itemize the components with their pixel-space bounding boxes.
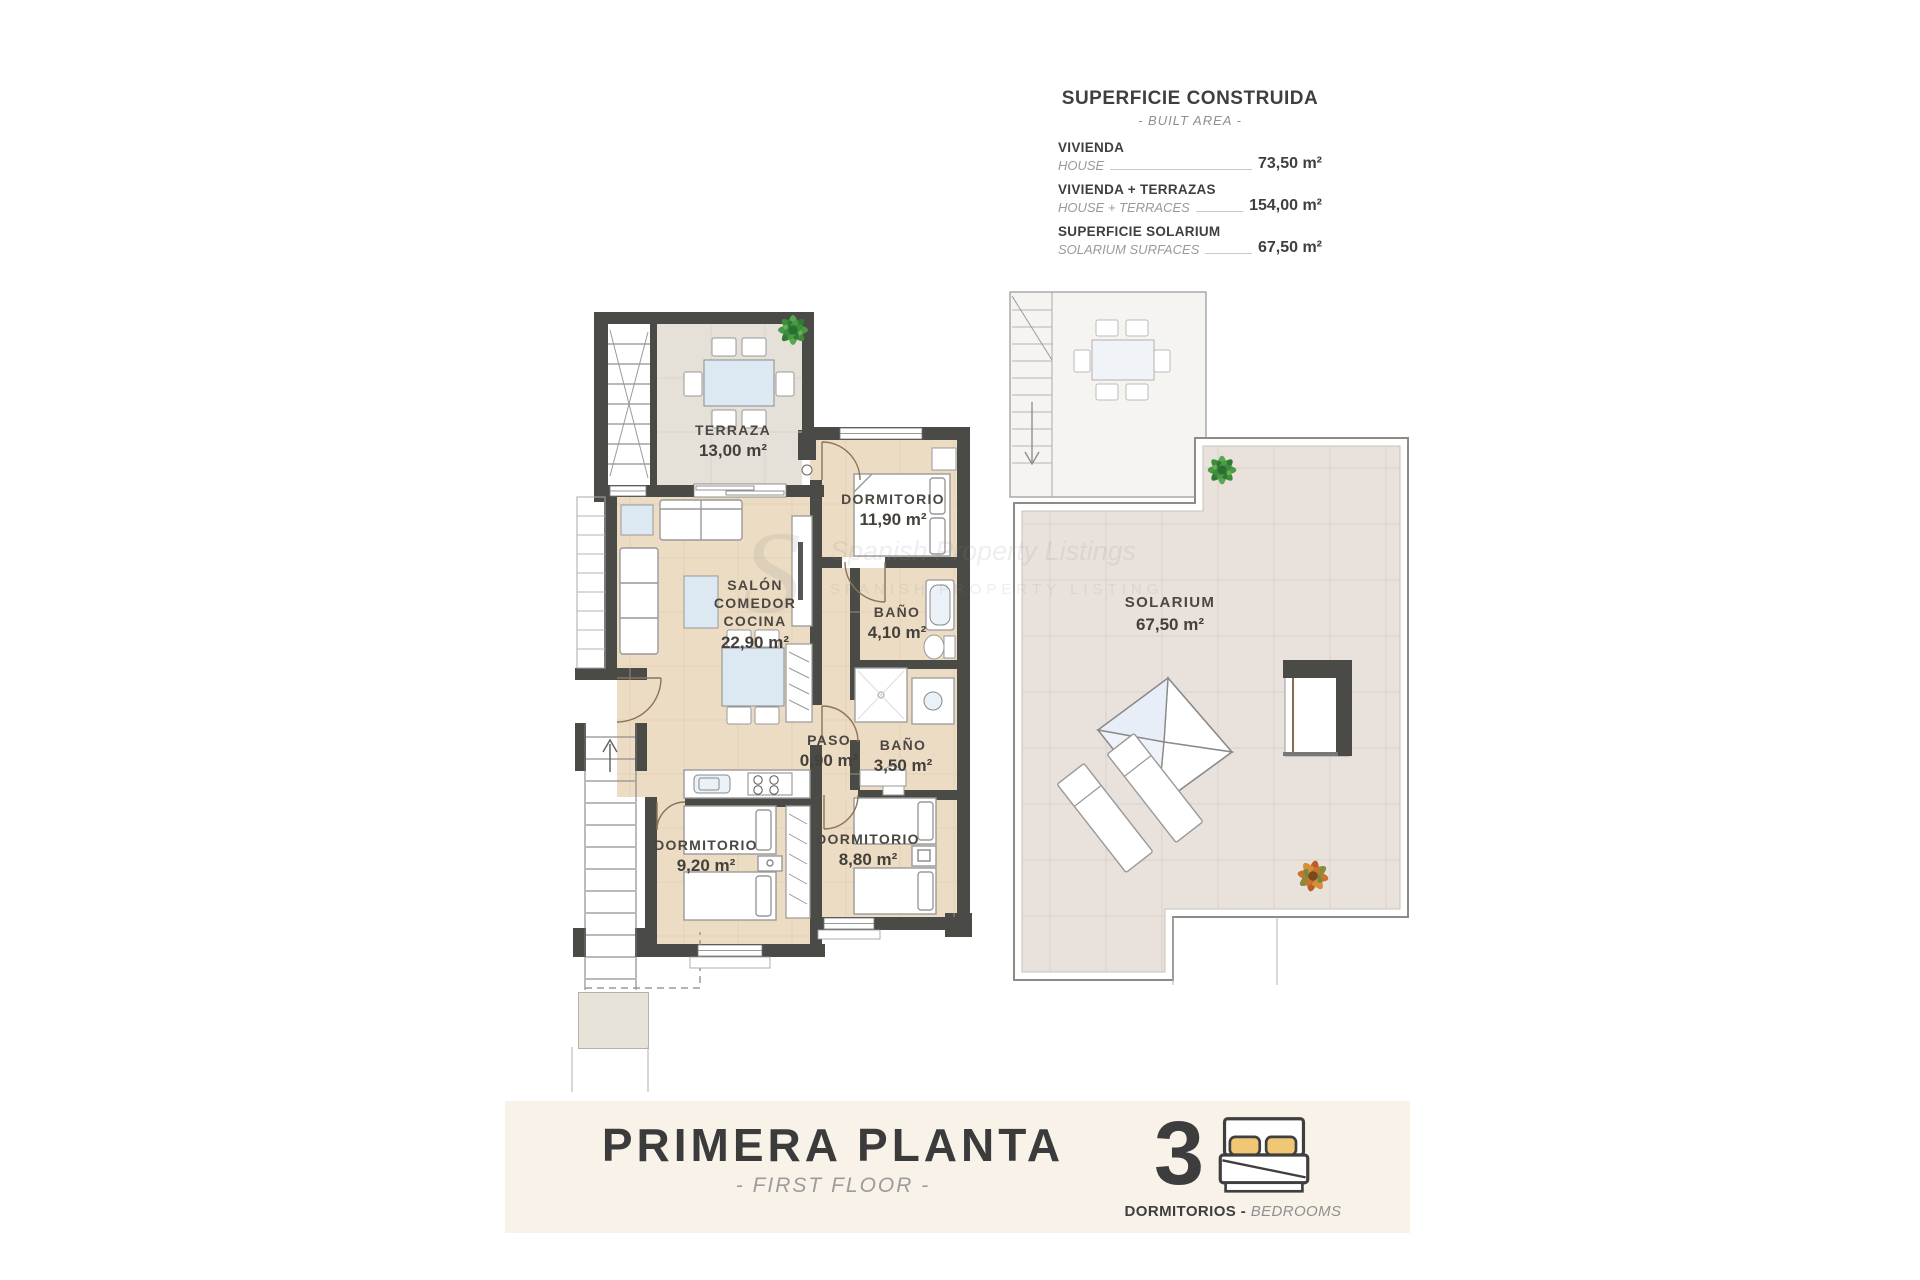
room-name: TERRAZA: [653, 421, 813, 439]
built-area-subtitle: - BUILT AREA -: [1058, 113, 1322, 128]
room-area: 4,10 m²: [849, 623, 945, 643]
wall-segment: [810, 805, 822, 944]
solarium-deck: [1014, 438, 1408, 985]
built-area-row: VIVIENDA HOUSE 73,50 m²: [1058, 140, 1322, 173]
footer-banner: PRIMERA PLANTA - FIRST FLOOR - 3 DORMITO…: [505, 1101, 1410, 1233]
row-value: 73,50 m²: [1258, 155, 1322, 173]
stairs-mid: [577, 497, 605, 668]
stairs-top: [608, 330, 650, 478]
room-name: DORMITORIO: [800, 830, 936, 848]
wall-segment: [885, 557, 957, 568]
built-area-row: SUPERFICIE SOLARIUM SOLARIUM SURFACES 67…: [1058, 224, 1322, 257]
wall-segment: [635, 928, 647, 957]
room-name: BAÑO: [849, 603, 945, 621]
dormitorio2-door-floor: [655, 797, 685, 807]
room-label-dormitorio-2: DORMITORIO 9,20 m²: [646, 836, 766, 876]
wall-segment: [858, 790, 957, 800]
room-area: 3,50 m²: [855, 756, 951, 776]
built-area-title: SUPERFICIE CONSTRUIDA: [1058, 88, 1322, 110]
plant-icon: [1297, 860, 1330, 893]
bedrooms-label-es: DORMITORIOS: [1125, 1203, 1237, 1220]
wall-segment: [573, 928, 586, 957]
stair-landing-below: [578, 992, 649, 1049]
room-name: SOLARIUM: [1088, 593, 1252, 613]
floor-title-block: PRIMERA PLANTA - FIRST FLOOR -: [533, 1121, 1133, 1198]
dotted-leader: [1110, 169, 1252, 170]
row-label: SUPERFICIE SOLARIUM: [1058, 224, 1322, 239]
floor-title: PRIMERA PLANTA: [533, 1121, 1133, 1169]
wall-segment: [810, 660, 822, 705]
row-sublabel: HOUSE + TERRACES: [1058, 200, 1190, 215]
terraza-floor: [657, 324, 802, 487]
wall-segment: [945, 913, 972, 937]
room-name: DORMITORIO: [646, 836, 766, 854]
wall-segment: [802, 427, 970, 440]
room-name: DORMITORIO: [820, 490, 966, 508]
sunbed: [1107, 733, 1203, 842]
room-area: 11,90 m²: [820, 510, 966, 530]
room-label-dormitorio-3: DORMITORIO 8,80 m²: [800, 830, 936, 870]
wall-segment: [822, 557, 842, 568]
bedrooms-label: DORMITORIOS - BEDROOMS: [1108, 1203, 1358, 1220]
stair-extension-lines: [572, 1047, 648, 1092]
built-area-panel: SUPERFICIE CONSTRUIDA - BUILT AREA - VIV…: [1058, 88, 1322, 257]
wall-segment: [650, 324, 657, 487]
row-value: 154,00 m²: [1249, 197, 1322, 215]
upper-terrace-outline: [1010, 292, 1206, 497]
bedrooms-block: 3 DORMITORIOS - BEDROOMS: [1108, 1109, 1358, 1220]
room-label-dormitorio-1: DORMITORIO 11,90 m²: [820, 490, 966, 530]
wall-segment: [594, 312, 814, 324]
bedrooms-label-en: BEDROOMS: [1251, 1203, 1342, 1220]
bedrooms-separator: -: [1236, 1203, 1251, 1220]
wall-segment: [575, 723, 586, 771]
plant-icon: [1208, 456, 1237, 485]
wall-segment: [645, 944, 825, 957]
pyramid-skylight: [1098, 678, 1232, 806]
room-name: BAÑO: [855, 736, 951, 754]
floor-plan-page: S Spanish Property Listings SPANISH PROP…: [0, 0, 1920, 1280]
wall-segment: [685, 797, 812, 807]
row-sublabel: SOLARIUM SURFACES: [1058, 242, 1199, 257]
room-area: 13,00 m²: [653, 441, 813, 461]
wall-segment: [575, 668, 647, 680]
room-area: 9,20 m²: [646, 856, 766, 876]
room-name: SALÓN: [690, 576, 820, 594]
room-area: 8,80 m²: [800, 850, 936, 870]
room-label-solarium: SOLARIUM 67,50 m²: [1088, 593, 1252, 635]
dormitorio3-door-floor: [822, 790, 858, 800]
room-name: COMEDOR: [690, 594, 820, 612]
stair-bulkhead: [1283, 660, 1352, 756]
bed-icon: [1216, 1116, 1312, 1194]
row-value: 67,50 m²: [1258, 239, 1322, 257]
room-name: COCINA: [690, 612, 820, 630]
floor-subtitle: - FIRST FLOOR -: [533, 1174, 1133, 1198]
room-label-terraza: TERRAZA 13,00 m²: [653, 421, 813, 461]
row-sublabel: HOUSE: [1058, 158, 1104, 173]
wall-segment: [604, 485, 824, 497]
row-label: VIVIENDA: [1058, 140, 1322, 155]
room-area: 67,50 m²: [1088, 615, 1252, 635]
built-area-row: VIVIENDA + TERRAZAS HOUSE + TERRACES 154…: [1058, 182, 1322, 215]
wall-segment: [850, 660, 957, 669]
wall-segment: [604, 497, 617, 675]
bedrooms-count: 3: [1154, 1112, 1204, 1198]
dotted-leader: [1205, 253, 1252, 254]
wall-segment: [635, 723, 647, 771]
room-area: 22,90 m²: [690, 633, 820, 653]
wall-segment: [594, 312, 608, 502]
room-label-bano-1: BAÑO 4,10 m²: [849, 603, 945, 643]
dotted-leader: [1196, 211, 1243, 212]
sunbed: [1057, 763, 1153, 872]
row-label: VIVIENDA + TERRAZAS: [1058, 182, 1322, 197]
room-label-bano-2: BAÑO 3,50 m²: [855, 736, 951, 776]
room-label-salon: SALÓN COMEDOR COCINA 22,90 m²: [690, 576, 820, 653]
